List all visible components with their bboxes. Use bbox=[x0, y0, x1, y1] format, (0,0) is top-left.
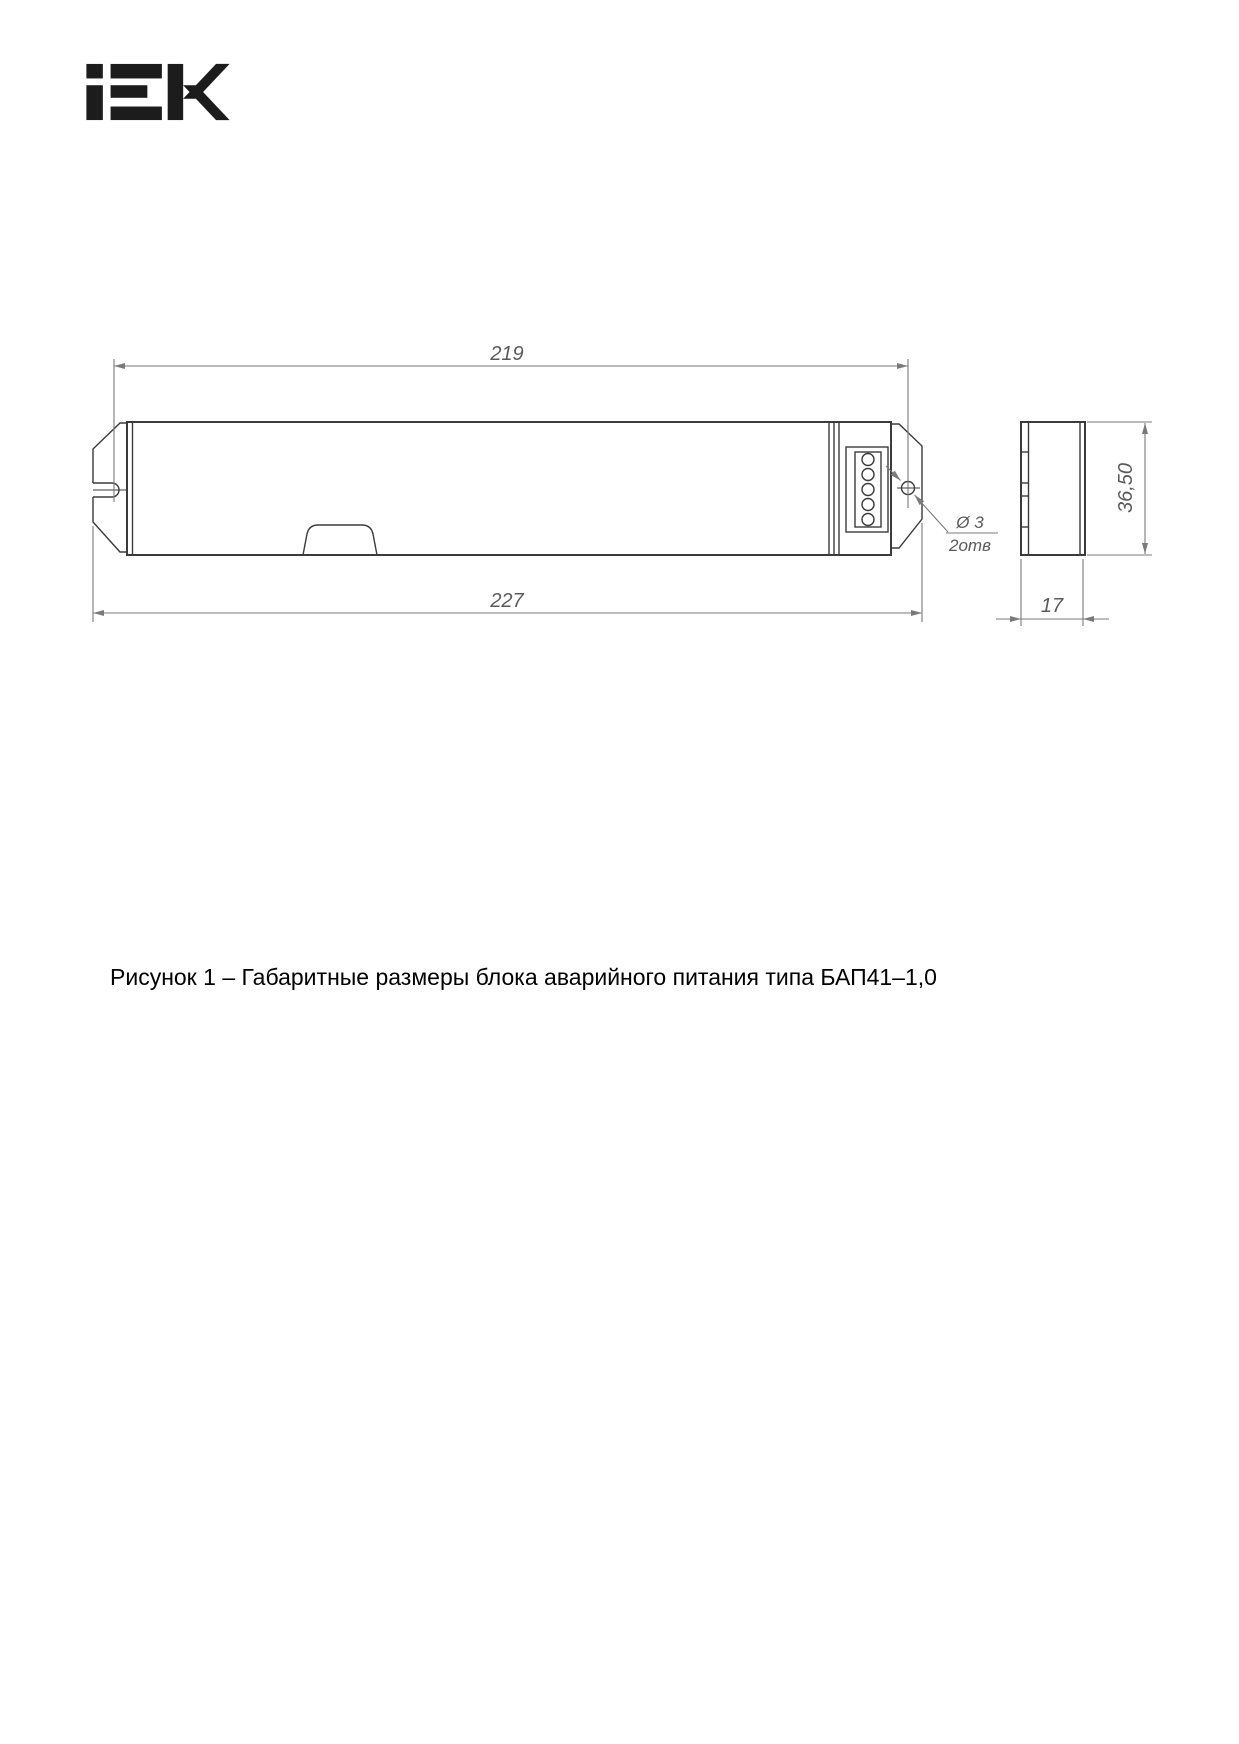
dim-label-height: 36,50 bbox=[1115, 463, 1137, 513]
front-view bbox=[93, 422, 922, 555]
terminal-block-inner bbox=[855, 452, 881, 527]
left-mounting-tab bbox=[93, 423, 127, 552]
logo-k-lower-arm bbox=[183, 85, 229, 120]
side-body bbox=[1021, 422, 1085, 555]
terminal-hole-5 bbox=[862, 514, 874, 526]
dim-label-227: 227 bbox=[489, 590, 524, 612]
iek-logo: IEK bbox=[86, 62, 230, 122]
front-body bbox=[127, 422, 891, 555]
terminal-hole-1 bbox=[862, 454, 874, 466]
logo-i-stem bbox=[86, 85, 102, 120]
hole-diameter-label: Ø 3 bbox=[955, 513, 984, 532]
terminal-hole-3 bbox=[862, 484, 874, 496]
terminal-hole-2 bbox=[862, 469, 874, 481]
dimension-drawing: 219 227 36,50 17 Ø 3 2отв bbox=[0, 280, 1239, 700]
logo-e-bottom-bar bbox=[111, 107, 162, 121]
logo-i-dot bbox=[86, 64, 102, 79]
logo-k-upper-arm bbox=[183, 64, 229, 99]
logo-e-top-bar bbox=[111, 64, 162, 79]
hole-leader-lower bbox=[915, 495, 949, 532]
terminal-hole-4 bbox=[862, 499, 874, 511]
cable-entry-bump bbox=[303, 525, 377, 555]
dim-label-depth: 17 bbox=[1041, 595, 1064, 617]
terminal-block-outer bbox=[846, 447, 888, 532]
right-mounting-tab bbox=[891, 424, 922, 548]
side-view bbox=[1021, 422, 1085, 555]
iek-logo-graphic bbox=[86, 62, 230, 122]
dim-label-219: 219 bbox=[489, 343, 523, 365]
hole-count-label: 2отв bbox=[948, 536, 991, 555]
document-page: IEK bbox=[0, 0, 1239, 1744]
dimensions: 219 227 36,50 17 Ø 3 2отв bbox=[93, 343, 1152, 626]
figure-caption: Рисунок 1 – Габаритные размеры блока ава… bbox=[110, 963, 937, 992]
logo-e-mid-bar bbox=[111, 85, 148, 98]
logo-k-stem bbox=[168, 64, 183, 120]
